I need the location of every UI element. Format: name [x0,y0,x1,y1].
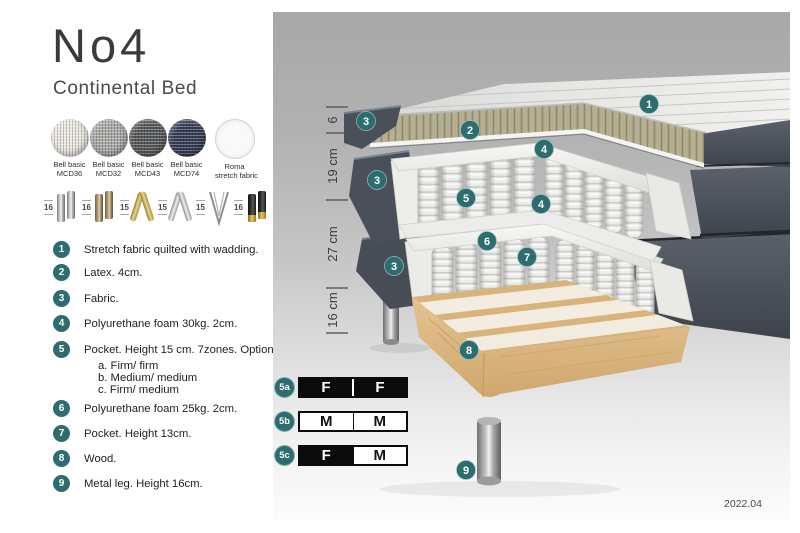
fabric-code: MCD32 [89,169,128,178]
list-item: 3Fabric. [53,290,271,307]
leg-height: 15 [158,203,167,212]
svg-text:3: 3 [391,261,397,273]
page-title: No4 [52,18,150,73]
product-sheet: No4 Continental Bed Bell basicMCD36 Bell… [0,0,800,533]
callout-4-lower: 4 [532,195,551,214]
fabric-swatch-circle [51,119,89,157]
fabric-swatch: Romastretch fabric [215,119,254,180]
svg-text:4: 4 [541,144,548,156]
cylinder-bronze-leg-icon [93,186,117,228]
fabric-name: Bell basic [89,160,128,169]
item-text: Pocket. Height 13cm. [84,425,191,440]
leg-option: 15 [194,186,232,228]
item-text: Fabric. [84,290,119,305]
callout-2: 2 [461,121,480,140]
callout-4-upper: 4 [535,140,554,159]
callout-9: 9 [457,461,476,480]
list-item: 9Metal leg. Height 16cm. [53,475,271,492]
item-text: Latex. 4cm. [84,264,142,279]
item-number-badge: 7 [53,425,70,442]
firmness-option-5c: 5c F M [274,445,408,466]
cylinder-silver-leg-icon [55,186,79,228]
fabric-swatches: Bell basicMCD36 Bell basicMCD32 Bell bas… [50,119,254,180]
list-item: 8Wood. [53,450,271,467]
firmness-badge: 5c [274,445,295,466]
firmness-box: F M [298,445,408,466]
svg-text:6: 6 [484,236,490,248]
firmness-option-5a: 5a F F [274,377,408,398]
list-item: 7Pocket. Height 13cm. [53,425,271,442]
pocket-option-a: a. Firm/ firm [98,360,271,372]
item-text: Metal leg. Height 16cm. [84,475,203,490]
fabric-name: Bell basic [128,160,167,169]
firmness-cell: F [300,379,352,396]
leg-option: 16 [80,186,118,228]
fabric-swatch: Bell basicMCD36 [50,119,89,180]
callout-3-bottom: 3 [385,257,404,276]
firmness-box: F F [298,377,408,398]
pocket-options: a. Firm/ firm b. Medium/ medium c. Firm/… [98,360,271,396]
callout-3-middle: 3 [368,171,387,190]
list-item: 1Stretch fabric quilted with wadding. [53,241,271,258]
firmness-cell: M [353,447,407,464]
firmness-cell: F [300,447,353,464]
item-number-badge: 6 [53,400,70,417]
leg-option: 16 [232,186,270,228]
fabric-code: MCD74 [167,169,206,178]
fabric-name: Bell basic [50,160,89,169]
version-label: 2022.04 [724,498,762,510]
firmness-option-5b: 5b M M [274,411,408,432]
spec-list: 1Stretch fabric quilted with wadding. 2L… [53,241,271,492]
floor-shadow [380,481,620,497]
leg-height: 15 [196,203,205,212]
callout-7: 7 [518,248,537,267]
list-item: 2Latex. 4cm. [53,264,271,281]
twisted-gold-leg-icon [131,186,155,228]
item-number-badge: 4 [53,315,70,332]
fabric-code: stretch fabric [215,171,254,180]
dim-leg: 16 cm [325,292,340,327]
fabric-swatch-circle [215,119,255,159]
fabric-swatch-circle [90,119,128,157]
cylinder-black-gold-leg-icon [245,186,269,228]
fabric-swatch: Bell basicMCD74 [167,119,206,180]
callout-5: 5 [457,189,476,208]
dim-base: 27 cm [325,226,340,261]
list-item: 4Polyurethane foam 30kg. 2cm. [53,315,271,332]
leg-option: 16 [42,186,80,228]
firmness-box: M M [298,411,408,432]
item-text: Polyurethane foam 25kg. 2cm. [84,400,237,415]
svg-text:8: 8 [466,345,472,357]
leg-option: 15 [118,186,156,228]
callout-3-top: 3 [357,112,376,131]
fabric-name: Roma [215,162,254,171]
bed-diagram-panel: 6 19 cm 27 cm 16 cm [273,12,790,520]
leg-options: 16 16 15 15 15 16 [42,186,270,228]
twisted-silver-leg-icon [169,186,193,228]
item-text: Wood. [84,450,116,465]
list-item: 6Polyurethane foam 25kg. 2cm. [53,400,271,417]
leg-height: 16 [82,203,91,212]
hairpin-leg-icon [207,186,231,228]
firmness-badge: 5a [274,377,295,398]
fabric-code: MCD43 [128,169,167,178]
firmness-badge: 5b [274,411,295,432]
item-number-badge: 5 [53,341,70,358]
fabric-swatch-circle [168,119,206,157]
bed-cutaway-illustration: 6 19 cm 27 cm 16 cm [273,12,790,520]
item-text: Pocket. Height 15 cm. 7zones. Option: [84,341,277,356]
item-text: Polyurethane foam 30kg. 2cm. [84,315,237,330]
svg-text:3: 3 [363,116,369,128]
pocket-option-c: c. Firm/ medium [98,384,271,396]
item-text: Stretch fabric quilted with wadding. [84,241,259,256]
leg-option: 15 [156,186,194,228]
firmness-cell: F [352,379,406,396]
callout-8: 8 [460,341,479,360]
pocket-option-b: b. Medium/ medium [98,372,271,384]
leg-height: 15 [120,203,129,212]
leg-height: 16 [44,203,53,212]
dim-topper: 6 [325,116,340,123]
firmness-cell: M [300,413,353,430]
fabric-swatch: Bell basicMCD32 [89,119,128,180]
svg-text:2: 2 [467,125,473,137]
leg-shadow [370,343,430,353]
fabric-name: Bell basic [167,160,206,169]
callout-1: 1 [640,95,659,114]
item-number-badge: 3 [53,290,70,307]
item-number-badge: 1 [53,241,70,258]
fabric-code: MCD36 [50,169,89,178]
list-item: 5Pocket. Height 15 cm. 7zones. Option: [53,341,271,358]
firmness-cell: M [353,413,407,430]
dim-mattress: 19 cm [325,148,340,183]
item-number-badge: 2 [53,264,70,281]
metal-leg-front [477,417,501,486]
leg-height: 16 [234,203,243,212]
fabric-swatch-circle [129,119,167,157]
svg-text:9: 9 [463,465,469,477]
callout-6: 6 [478,232,497,251]
svg-text:5: 5 [463,193,469,205]
item-number-badge: 9 [53,475,70,492]
fabric-swatch: Bell basicMCD43 [128,119,167,180]
item-number-badge: 8 [53,450,70,467]
svg-text:7: 7 [524,252,530,264]
svg-text:1: 1 [646,99,652,111]
svg-text:3: 3 [374,175,380,187]
page-subtitle: Continental Bed [53,78,197,100]
svg-text:4: 4 [538,199,545,211]
